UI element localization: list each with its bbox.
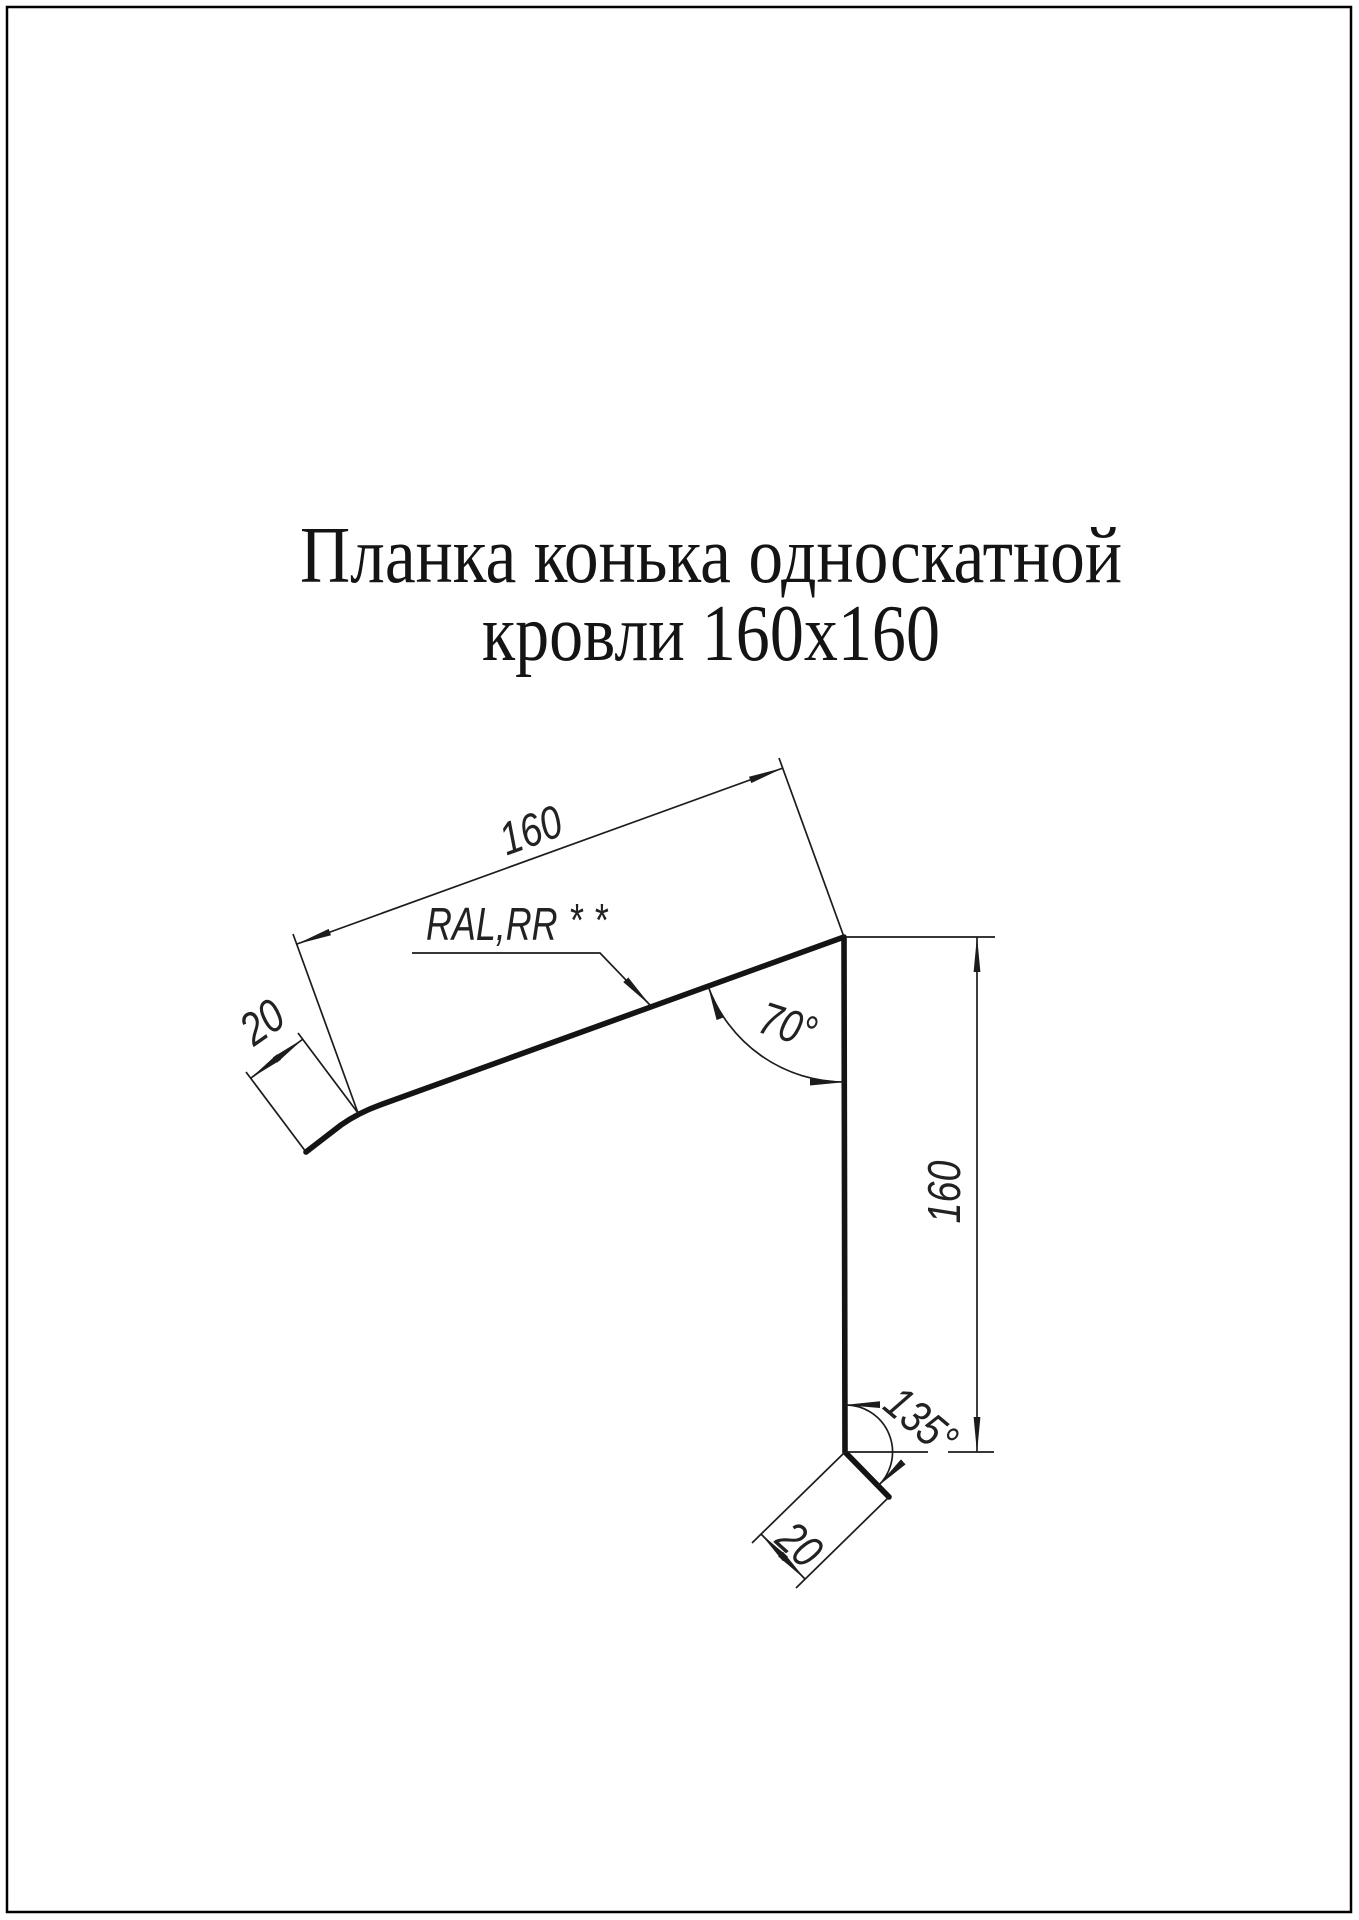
drawing-page: Планка конька односкатной кровли 160х160…	[0, 0, 1359, 1920]
dim-vertical-length-label: 160	[918, 1160, 969, 1223]
page-border	[7, 7, 1351, 1912]
dim-slope-length-label: 160	[492, 795, 569, 865]
dim-top-angle: 70°	[708, 986, 845, 1082]
dim-bottom-flange-label: 20	[766, 1510, 833, 1577]
coating-code: RAL,RR	[426, 899, 558, 950]
leader-line	[412, 953, 650, 1005]
coating-asterisks: **	[569, 895, 619, 946]
page-title-line2: кровли 160х160	[482, 590, 940, 678]
coating-note-label: RAL,RR**	[426, 895, 618, 950]
coating-note: RAL,RR**	[412, 895, 650, 1005]
extension-line	[293, 934, 358, 1113]
extension-line	[246, 1072, 306, 1152]
dim-top-flange-label: 20	[229, 989, 294, 1056]
dim-vertical-length: 160	[845, 937, 995, 1452]
dim-top-angle-label: 70°	[753, 992, 823, 1059]
page-title-line1: Планка конька односкатной	[300, 512, 1122, 600]
extension-line	[779, 758, 844, 937]
extension-line	[298, 1033, 358, 1113]
technical-drawing: Планка конька односкатной кровли 160х160…	[0, 0, 1359, 1920]
